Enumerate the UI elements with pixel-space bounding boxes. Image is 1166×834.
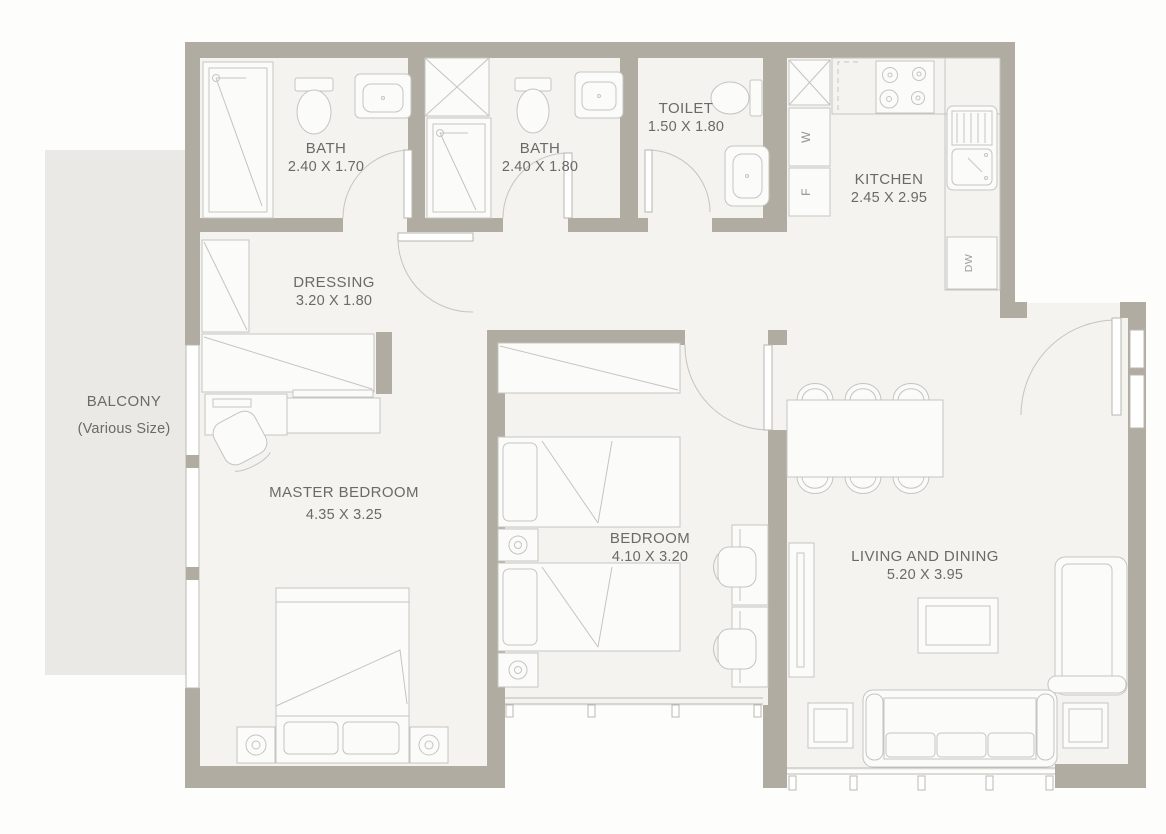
room-dims: 1.50 X 1.80 <box>648 119 724 135</box>
dishwasher-icon: DW <box>947 237 997 289</box>
room-name: TOILET <box>659 100 714 117</box>
floor-plan-drawing: DW W F <box>0 0 1166 834</box>
shower-icon <box>427 118 491 218</box>
dishwasher-label: DW <box>963 254 975 273</box>
wardrobe <box>202 334 374 392</box>
sink-icon <box>575 72 623 118</box>
double-bed <box>276 588 409 763</box>
room-dims: (Various Size) <box>78 421 171 437</box>
nightstand-mid <box>498 529 538 561</box>
sink-icon <box>355 74 411 118</box>
toilet-icon <box>711 80 762 116</box>
twin-bed-1 <box>498 437 680 527</box>
fridge-label: F <box>799 188 813 196</box>
shower-icon <box>203 62 273 218</box>
dining-chairs-bottom <box>797 477 929 494</box>
dining-chairs-top <box>797 384 929 401</box>
room-dims: 5.20 X 3.95 <box>887 567 963 583</box>
dining-table <box>787 400 943 477</box>
room-dims: 2.40 X 1.80 <box>502 159 578 175</box>
side-table-right <box>1063 703 1108 748</box>
closet-tall <box>202 240 249 332</box>
exterior-notch-top-right <box>1015 0 1166 302</box>
shaft-icon <box>425 58 489 116</box>
tv-unit <box>287 390 380 433</box>
stove-icon <box>876 61 934 113</box>
toilet-icon <box>515 78 551 133</box>
room-name: BEDROOM <box>610 530 690 547</box>
floor-plan-canvas: DW W F <box>0 0 1166 834</box>
fridge-icon: F <box>789 168 830 216</box>
room-dims: 2.45 X 2.95 <box>851 190 927 206</box>
nightstand-right <box>410 727 448 763</box>
room-name: KITCHEN <box>855 171 924 188</box>
living-window <box>787 768 1055 790</box>
room-dims: 3.20 X 1.80 <box>296 293 372 309</box>
toilet-icon <box>295 78 333 134</box>
balcony-floor <box>45 150 187 675</box>
tv-unit <box>789 543 814 677</box>
desk-chair-icon <box>714 547 757 587</box>
room-dims: 4.10 X 3.20 <box>612 549 688 565</box>
side-window-1 <box>1130 330 1144 368</box>
coffee-table <box>918 598 998 653</box>
room-name: LIVING AND DINING <box>851 548 999 565</box>
washer-icon: W <box>789 108 830 166</box>
desk-chair-icon <box>714 629 757 669</box>
kitchen-sink-icon <box>947 106 997 190</box>
nightstand-left <box>237 727 275 763</box>
balcony-window <box>186 345 199 688</box>
side-window-2 <box>1130 375 1144 428</box>
room-name: BALCONY <box>87 393 162 410</box>
side-table-left <box>808 703 853 748</box>
exterior-notch-bottom <box>505 706 763 790</box>
nightstand-bottom <box>498 653 538 687</box>
room-name: MASTER BEDROOM <box>269 484 419 501</box>
sofa <box>863 690 1057 767</box>
armchair <box>1048 557 1127 695</box>
washer-label: W <box>799 131 813 143</box>
room-name: DRESSING <box>293 274 375 291</box>
twin-bed-2 <box>498 563 680 651</box>
wardrobe <box>498 343 680 393</box>
room-name: BATH <box>520 140 561 157</box>
shaft-icon <box>789 60 830 105</box>
room-dims: 2.40 X 1.70 <box>288 159 364 175</box>
room-name: BATH <box>306 140 347 157</box>
room-dims: 4.35 X 3.25 <box>306 507 382 523</box>
sink-icon <box>725 146 769 206</box>
